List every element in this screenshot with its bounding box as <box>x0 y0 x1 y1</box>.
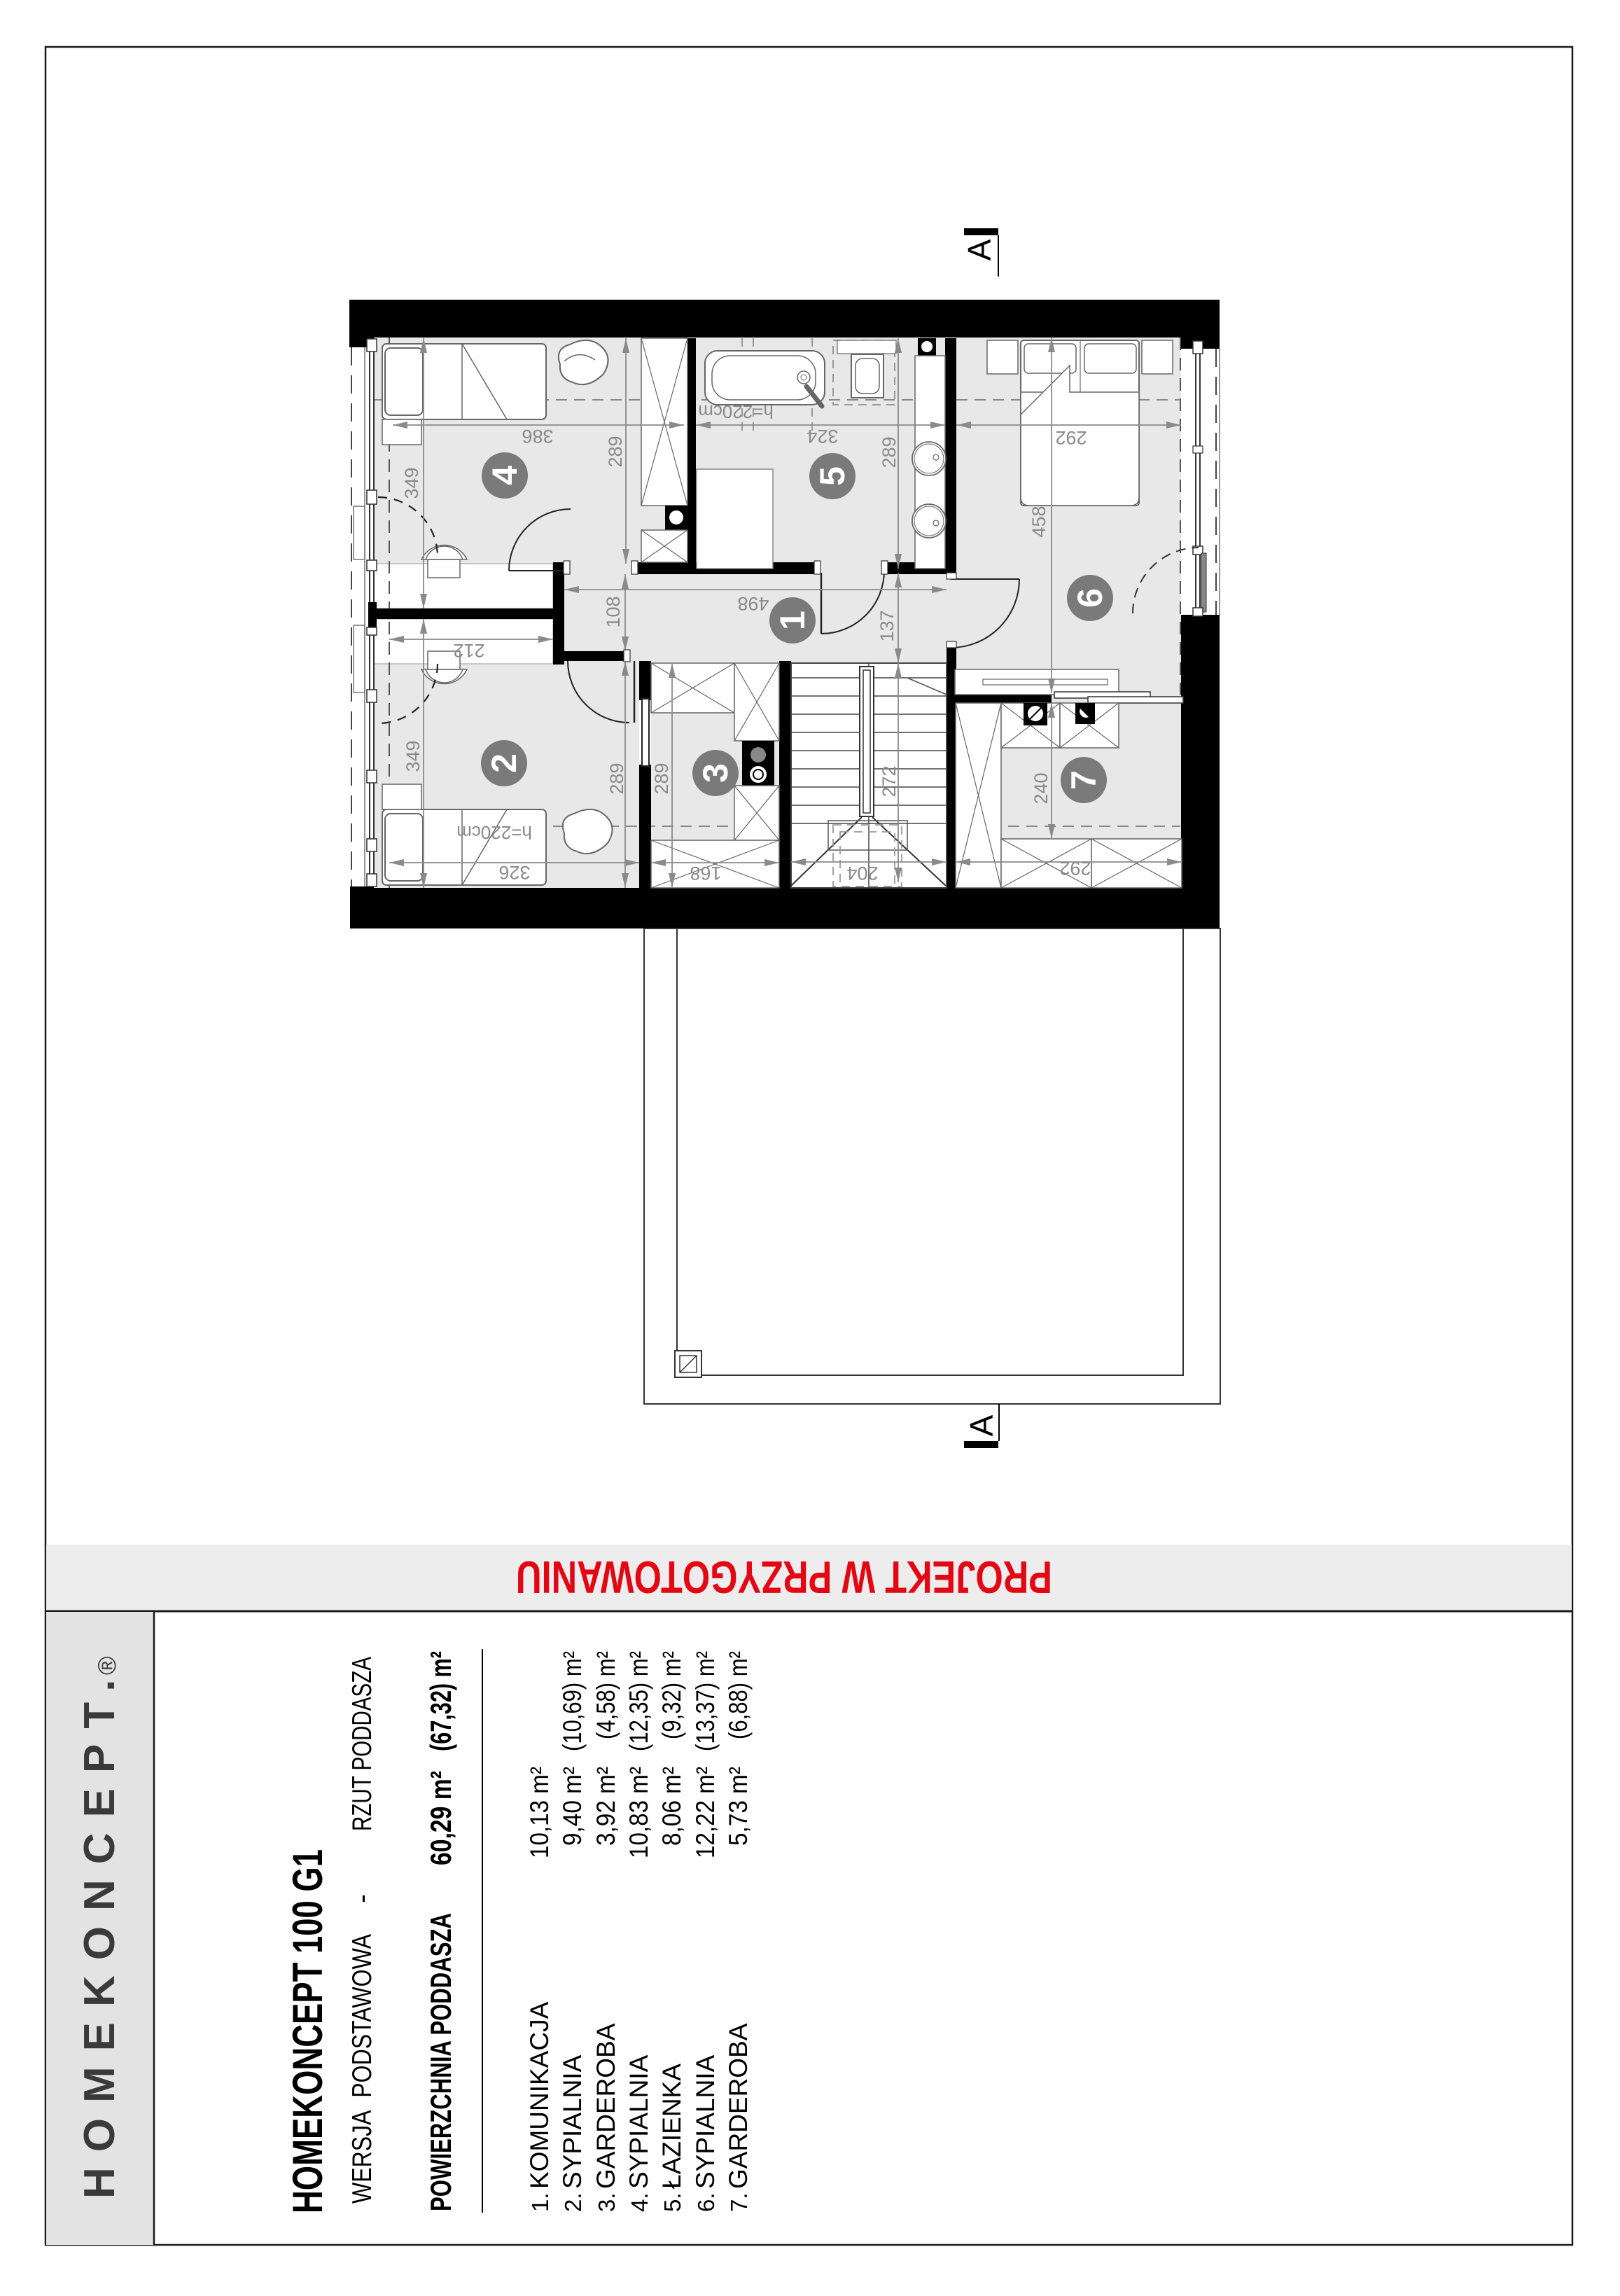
svg-text:SYPIALNIA: SYPIALNIA <box>624 2054 653 2189</box>
svg-text:60,29 m²: 60,29 m² <box>424 1771 457 1865</box>
svg-text:A: A <box>963 1414 1000 1436</box>
svg-text:HOMEKONCEPT 100 G1: HOMEKONCEPT 100 G1 <box>284 1849 331 2213</box>
svg-text:292: 292 <box>1055 427 1087 448</box>
svg-text:POWIERZCHNIA PODDASZA: POWIERZCHNIA PODDASZA <box>424 1913 457 2211</box>
svg-text:3.: 3. <box>594 2192 620 2212</box>
svg-text:12,22 m²: 12,22 m² <box>691 1767 720 1858</box>
svg-text:204: 204 <box>846 863 878 884</box>
svg-text:6.: 6. <box>693 2192 719 2212</box>
svg-text:PROJEKT W PRZYGOTOWANIU: PROJEKT W PRZYGOTOWANIU <box>516 1552 1052 1603</box>
svg-text:9,40 m²: 9,40 m² <box>558 1767 587 1846</box>
svg-text:4.: 4. <box>627 2192 652 2212</box>
svg-text:6: 6 <box>1070 588 1110 608</box>
svg-text:326: 326 <box>498 862 530 883</box>
svg-text:8,06 m²: 8,06 m² <box>657 1767 686 1846</box>
svg-text:10,83 m²: 10,83 m² <box>624 1767 653 1858</box>
svg-text:(10,69) m²: (10,69) m² <box>558 1651 587 1751</box>
svg-text:289: 289 <box>651 763 672 794</box>
svg-text:RZUT PODDASZA: RZUT PODDASZA <box>347 1657 377 1831</box>
svg-text:1: 1 <box>773 611 812 630</box>
svg-text:(4,58) m²: (4,58) m² <box>592 1651 620 1739</box>
svg-text:3: 3 <box>696 763 735 783</box>
svg-text:108: 108 <box>603 596 624 627</box>
svg-text:4: 4 <box>485 466 524 485</box>
svg-text:292: 292 <box>1059 858 1091 879</box>
svg-text:7: 7 <box>1064 770 1103 790</box>
svg-text:-: - <box>347 1894 377 1903</box>
svg-text:2: 2 <box>484 753 524 773</box>
svg-text:168: 168 <box>690 863 721 884</box>
svg-text:2.: 2. <box>560 2192 586 2212</box>
svg-text:7.: 7. <box>726 2192 752 2212</box>
svg-text:h=220cm: h=220cm <box>698 401 774 422</box>
svg-text:272: 272 <box>879 765 900 797</box>
svg-text:(13,37) m²: (13,37) m² <box>691 1651 720 1751</box>
svg-text:h=220cm: h=220cm <box>456 822 532 843</box>
svg-text:WERSJA PODSTAWOWA: WERSJA PODSTAWOWA <box>347 1934 377 2204</box>
svg-text:3,92 m²: 3,92 m² <box>592 1767 620 1846</box>
svg-text:SYPIALNIA: SYPIALNIA <box>691 2054 720 2189</box>
svg-text:289: 289 <box>879 436 900 468</box>
svg-text:(6,88) m²: (6,88) m² <box>724 1651 753 1739</box>
svg-text:498: 498 <box>737 593 769 614</box>
svg-text:1.: 1. <box>527 2192 553 2212</box>
svg-text:349: 349 <box>401 467 422 499</box>
svg-text:(12,35) m²: (12,35) m² <box>624 1651 653 1751</box>
svg-text:(67,32) m²: (67,32) m² <box>424 1651 457 1751</box>
svg-text:5: 5 <box>813 466 852 486</box>
svg-text:349: 349 <box>403 740 424 772</box>
svg-text:5.: 5. <box>659 2192 685 2212</box>
svg-text:212: 212 <box>453 640 484 661</box>
svg-text:ŁAZIENKA: ŁAZIENKA <box>657 2064 686 2189</box>
svg-text:GARDEROBA: GARDEROBA <box>724 2023 753 2189</box>
svg-text:SYPIALNIA: SYPIALNIA <box>558 2054 587 2189</box>
svg-text:(9,32) m²: (9,32) m² <box>657 1651 686 1739</box>
svg-text:®: ® <box>92 1656 121 1675</box>
svg-text:324: 324 <box>806 426 838 447</box>
svg-text:GARDEROBA: GARDEROBA <box>592 2023 620 2189</box>
svg-text:458: 458 <box>1028 506 1049 537</box>
svg-text:240: 240 <box>1031 772 1052 804</box>
svg-text:137: 137 <box>877 610 898 641</box>
svg-text:289: 289 <box>605 436 626 467</box>
svg-text:A: A <box>961 239 998 260</box>
svg-text:10,13 m²: 10,13 m² <box>525 1767 554 1858</box>
svg-text:KOMUNIKACJA: KOMUNIKACJA <box>525 2001 554 2189</box>
svg-text:HOMEKONCEPT.: HOMEKONCEPT. <box>76 1664 124 2199</box>
svg-text:289: 289 <box>606 763 627 794</box>
svg-text:386: 386 <box>522 426 553 447</box>
svg-text:5,73 m²: 5,73 m² <box>724 1767 753 1846</box>
